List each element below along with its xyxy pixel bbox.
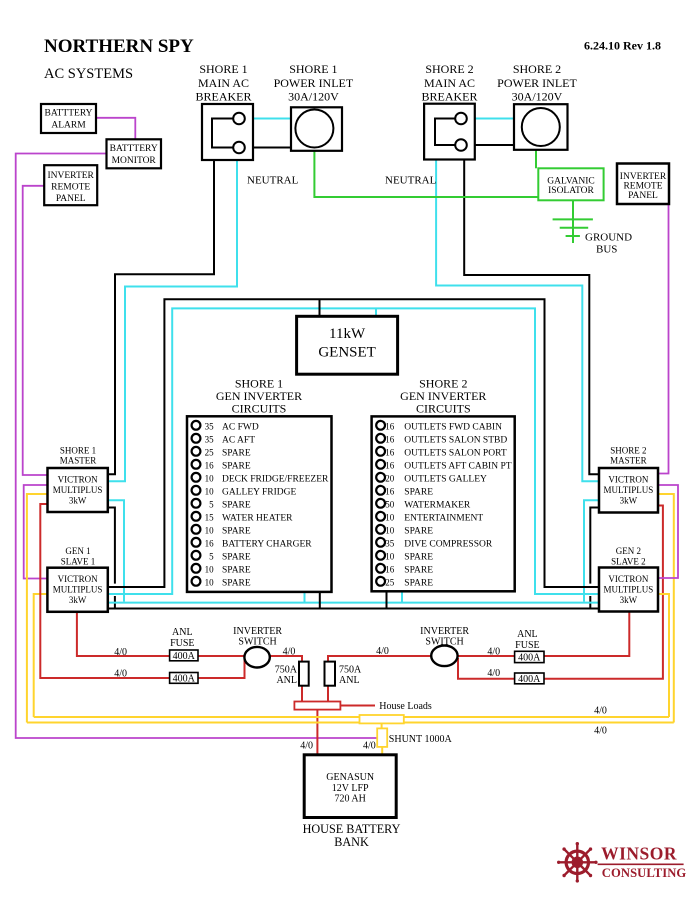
svg-text:MASTER: MASTER [610,456,647,466]
svg-text:10: 10 [205,526,215,536]
svg-text:AC FWD: AC FWD [222,423,259,433]
svg-text:SHORE 1: SHORE 1 [60,446,96,456]
svg-text:MULTIPLUS: MULTIPLUS [604,485,654,495]
svg-text:400A: 400A [518,674,541,685]
svg-text:WINSOR: WINSOR [601,844,677,864]
svg-text:DIVE COMPRESSOR: DIVE COMPRESSOR [404,540,493,550]
svg-text:16: 16 [205,539,215,549]
svg-text:MASTER: MASTER [60,456,97,466]
svg-text:16: 16 [385,422,395,432]
svg-text:5: 5 [209,552,214,562]
svg-text:FUSE: FUSE [170,638,194,649]
svg-text:25: 25 [385,578,395,588]
svg-text:SPARE: SPARE [404,566,433,576]
svg-text:10: 10 [205,565,215,575]
svg-text:35: 35 [385,539,395,549]
svg-text:SPARE: SPARE [222,566,251,576]
svg-text:NEUTRAL: NEUTRAL [247,175,299,187]
svg-text:BREAKER: BREAKER [421,90,477,104]
svg-text:WATER HEATER: WATER HEATER [222,514,293,524]
svg-text:FUSE: FUSE [515,640,539,651]
svg-text:MAIN AC: MAIN AC [424,76,475,90]
svg-text:6.24.10 Rev 1.8: 6.24.10 Rev 1.8 [584,39,661,53]
svg-text:50: 50 [385,500,395,510]
svg-text:GENSET: GENSET [318,345,376,361]
svg-text:3kW: 3kW [69,595,87,605]
svg-text:30A/120V: 30A/120V [512,90,563,104]
svg-text:4/0: 4/0 [376,646,389,657]
svg-text:3kW: 3kW [620,496,638,506]
svg-text:4/0: 4/0 [283,647,296,658]
svg-text:VICTRON: VICTRON [58,574,98,584]
svg-text:INVERTER: INVERTER [47,171,94,181]
svg-text:MONITOR: MONITOR [112,156,157,166]
svg-text:16: 16 [205,461,215,471]
svg-text:SWITCH: SWITCH [238,636,276,647]
svg-text:SPARE: SPARE [222,449,251,459]
svg-text:NORTHERN SPY: NORTHERN SPY [44,36,194,57]
svg-text:SPARE: SPARE [404,553,433,563]
svg-text:4/0: 4/0 [594,705,607,716]
svg-text:720 AH: 720 AH [334,794,365,805]
svg-text:VICTRON: VICTRON [608,574,648,584]
svg-text:INVERTER: INVERTER [620,172,667,182]
svg-text:16: 16 [385,487,395,497]
svg-text:BREAKER: BREAKER [195,90,251,104]
svg-text:MULTIPLUS: MULTIPLUS [53,485,103,495]
svg-text:20: 20 [385,474,395,484]
svg-text:House Loads: House Loads [379,701,432,712]
svg-text:CIRCUITS: CIRCUITS [416,401,471,415]
svg-text:4/0: 4/0 [363,741,376,752]
svg-text:GEN 1: GEN 1 [65,546,90,556]
svg-text:30A/120V: 30A/120V [288,90,339,104]
svg-text:10: 10 [385,513,395,523]
svg-text:35: 35 [205,422,215,432]
svg-text:CONSULTING: CONSULTING [602,866,687,880]
svg-text:5: 5 [209,500,214,510]
svg-text:SPARE: SPARE [404,488,433,498]
svg-text:15: 15 [205,513,215,523]
svg-text:GALLEY FRIDGE: GALLEY FRIDGE [222,488,297,498]
svg-text:ALARM: ALARM [51,121,86,131]
svg-text:25: 25 [205,448,215,458]
svg-text:SHORE 1: SHORE 1 [289,62,337,76]
svg-text:400A: 400A [173,673,196,684]
svg-text:SPARE: SPARE [404,579,433,589]
svg-text:4/0: 4/0 [114,647,127,658]
svg-text:10: 10 [385,526,395,536]
svg-text:BATTTERY: BATTTERY [44,109,92,119]
svg-text:VICTRON: VICTRON [58,474,98,484]
svg-text:ANL: ANL [339,675,360,686]
svg-text:AC AFT: AC AFT [222,436,255,446]
svg-text:PANEL: PANEL [56,194,86,204]
svg-text:OUTLETS GALLEY: OUTLETS GALLEY [404,475,487,485]
svg-text:35: 35 [205,435,215,445]
svg-text:BATTERY CHARGER: BATTERY CHARGER [222,540,312,550]
svg-text:GENASUN: GENASUN [326,772,374,783]
svg-text:OUTLETS SALON PORT: OUTLETS SALON PORT [404,449,507,459]
svg-text:4/0: 4/0 [487,647,500,658]
svg-text:GROUND: GROUND [585,231,632,243]
svg-text:11kW: 11kW [329,326,366,342]
svg-text:BUS: BUS [596,244,617,256]
svg-text:NEUTRAL: NEUTRAL [385,175,437,187]
svg-text:4/0: 4/0 [487,668,500,679]
svg-text:ANL: ANL [172,627,193,638]
svg-text:OUTLETS SALON STBD: OUTLETS SALON STBD [404,436,507,446]
svg-text:10: 10 [205,474,215,484]
svg-text:VICTRON: VICTRON [608,474,648,484]
svg-text:SHORE 2: SHORE 2 [425,62,473,76]
svg-text:MULTIPLUS: MULTIPLUS [53,585,103,595]
svg-text:SPARE: SPARE [222,527,251,537]
svg-text:750A: 750A [339,665,362,676]
svg-text:GEN 2: GEN 2 [616,546,641,556]
svg-text:400A: 400A [173,651,196,662]
svg-text:BANK: BANK [334,835,369,849]
svg-text:SHUNT 1000A: SHUNT 1000A [389,734,453,745]
svg-text:3kW: 3kW [620,595,638,605]
svg-text:4/0: 4/0 [300,740,313,751]
svg-text:AC SYSTEMS: AC SYSTEMS [44,66,133,82]
svg-text:10: 10 [205,487,215,497]
svg-text:16: 16 [385,448,395,458]
svg-text:12V LFP: 12V LFP [332,783,369,794]
svg-text:SPARE: SPARE [222,579,251,589]
svg-text:BATTTERY: BATTTERY [110,144,158,154]
svg-text:400A: 400A [518,652,541,663]
svg-text:ANL: ANL [276,675,297,686]
svg-text:SLAVE 2: SLAVE 2 [611,557,646,567]
svg-text:REMOTE: REMOTE [51,183,90,193]
svg-text:MULTIPLUS: MULTIPLUS [604,585,654,595]
svg-text:POWER INLET: POWER INLET [274,76,354,90]
svg-text:16: 16 [385,435,395,445]
svg-text:16: 16 [385,565,395,575]
svg-text:4/0: 4/0 [594,725,607,736]
svg-text:10: 10 [385,552,395,562]
svg-text:OUTLETS FWD CABIN: OUTLETS FWD CABIN [404,423,502,433]
svg-text:SHORE 2: SHORE 2 [513,62,561,76]
svg-text:10: 10 [205,578,215,588]
svg-text:16: 16 [385,461,395,471]
svg-text:SPARE: SPARE [222,462,251,472]
svg-text:3kW: 3kW [69,496,87,506]
svg-text:SPARE: SPARE [404,527,433,537]
svg-text:SPARE: SPARE [222,553,251,563]
svg-text:POWER INLET: POWER INLET [497,76,577,90]
svg-text:PANEL: PANEL [628,191,658,201]
svg-text:DECK FRIDGE/FREEZER: DECK FRIDGE/FREEZER [222,475,329,485]
svg-text:GALVANIC: GALVANIC [547,176,595,186]
svg-text:ISOLATOR: ISOLATOR [548,186,594,196]
svg-text:SPARE: SPARE [222,501,251,511]
svg-text:4/0: 4/0 [114,669,127,680]
svg-text:WATERMAKER: WATERMAKER [404,501,471,511]
svg-text:CIRCUITS: CIRCUITS [232,401,287,415]
svg-text:OUTLETS AFT CABIN PT: OUTLETS AFT CABIN PT [404,462,511,472]
svg-text:SHORE 2: SHORE 2 [610,446,646,456]
svg-text:SHORE 1: SHORE 1 [199,62,247,76]
svg-text:750A: 750A [275,665,298,676]
svg-text:ANL: ANL [517,629,538,640]
svg-text:SLAVE 1: SLAVE 1 [61,557,96,567]
svg-text:ENTERTAINMENT: ENTERTAINMENT [404,514,483,524]
svg-text:MAIN AC: MAIN AC [198,76,249,90]
